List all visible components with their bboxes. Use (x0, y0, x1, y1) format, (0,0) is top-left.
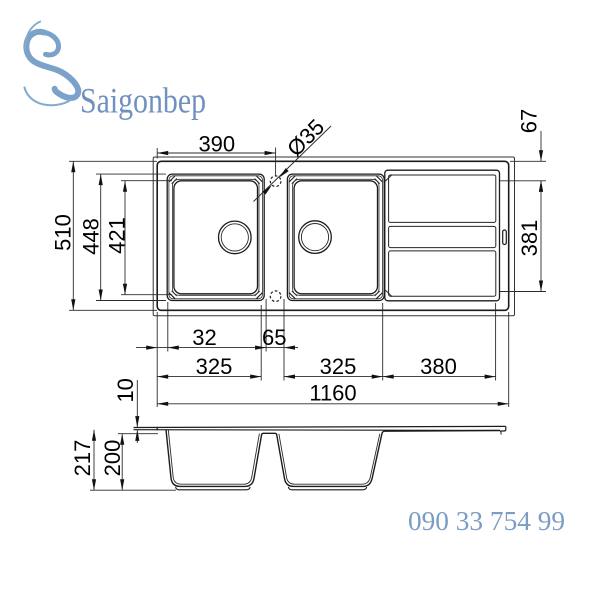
svg-text:421: 421 (105, 217, 130, 254)
svg-text:67: 67 (517, 109, 542, 133)
svg-text:090 33 754 99: 090 33 754 99 (408, 506, 565, 536)
svg-text:Saigonbep: Saigonbep (80, 80, 206, 120)
svg-text:380: 380 (420, 354, 457, 379)
svg-text:325: 325 (196, 354, 233, 379)
svg-text:325: 325 (320, 354, 357, 379)
svg-text:448: 448 (79, 218, 104, 255)
svg-text:65: 65 (262, 325, 286, 350)
svg-text:1160: 1160 (309, 381, 356, 406)
svg-text:510: 510 (51, 214, 76, 251)
svg-text:32: 32 (192, 325, 216, 350)
svg-text:390: 390 (198, 131, 235, 156)
svg-text:381: 381 (517, 220, 542, 257)
svg-text:10: 10 (113, 378, 138, 402)
svg-text:200: 200 (100, 440, 125, 477)
svg-text:217: 217 (70, 440, 95, 477)
